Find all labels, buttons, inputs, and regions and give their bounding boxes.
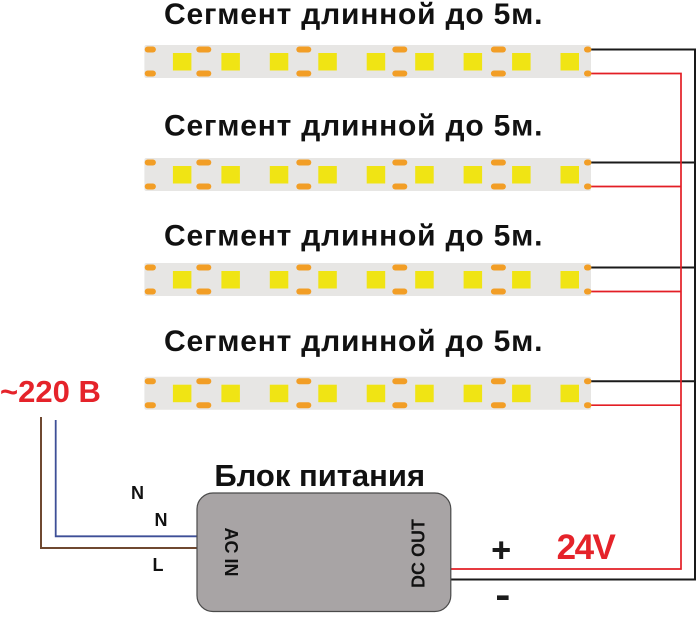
svg-text:L: L	[153, 555, 164, 575]
svg-text:Блок питания: Блок питания	[214, 458, 425, 493]
svg-text:Сегмент длинной до 5м.: Сегмент длинной до 5м.	[164, 0, 543, 31]
svg-text:Сегмент длинной до 5м.: Сегмент длинной до 5м.	[164, 325, 543, 358]
svg-text:Сегмент длинной до 5м.: Сегмент длинной до 5м.	[164, 219, 543, 252]
svg-text:24V: 24V	[557, 528, 617, 567]
svg-text:~220 В: ~220 В	[0, 374, 101, 409]
svg-text:N: N	[155, 510, 168, 530]
svg-text:Сегмент длинной до 5м.: Сегмент длинной до 5м.	[164, 110, 543, 143]
svg-text:AC IN: AC IN	[221, 528, 241, 577]
svg-text:N: N	[131, 483, 144, 503]
svg-text:DC OUT: DC OUT	[409, 519, 429, 588]
